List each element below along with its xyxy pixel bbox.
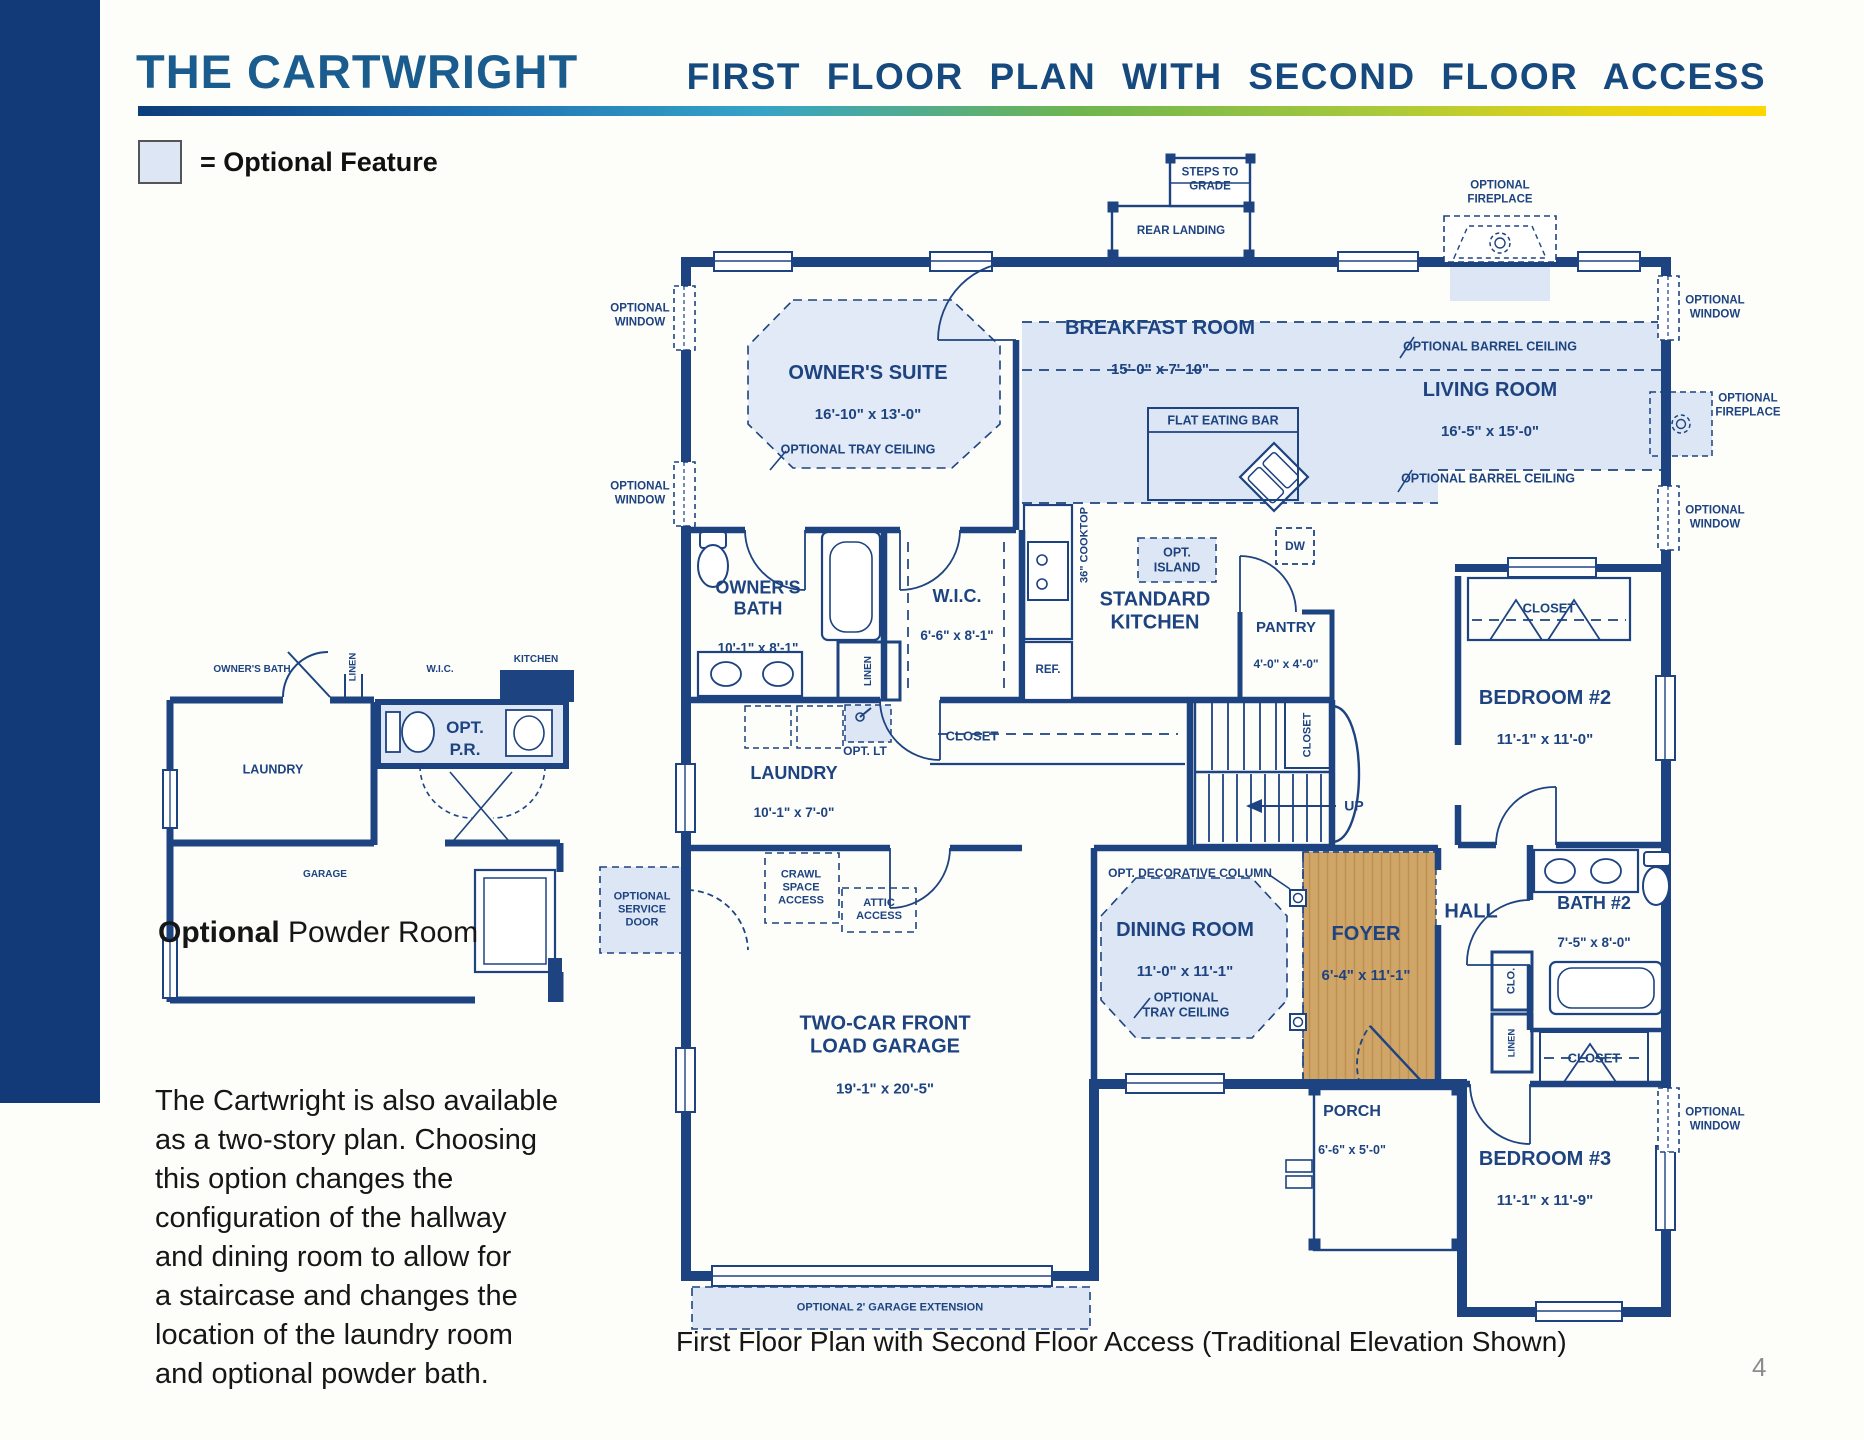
annotation-dw: DW <box>1285 539 1305 553</box>
annotation-optional-window-right-2: OPTIONAL WINDOW <box>1685 504 1744 531</box>
annotation-tray-ceiling-suite: OPTIONAL TRAY CEILING <box>781 443 936 458</box>
annotation-up: UP <box>1344 798 1363 815</box>
annotation-cooktop: 36" COOKTOP <box>1079 507 1092 583</box>
annotation-closet-bedroom3: CLOSET <box>1568 1050 1621 1065</box>
brochure-page: THE CARTWRIGHT FIRST FLOOR PLAN WITH SEC… <box>0 0 1864 1440</box>
inset-caption-bold: Optional <box>158 916 280 949</box>
room-label-pantry: PANTRY 4'-0" x 4'-0" <box>1253 600 1318 690</box>
inset-label-kitchen: KITCHEN <box>514 654 558 666</box>
annotation-service-door: OPTIONAL SERVICE DOOR <box>614 891 671 930</box>
annotation-garage-extension: OPTIONAL 2' GARAGE EXTENSION <box>797 1302 983 1315</box>
room-label-bedroom3: BEDROOM #3 11'-1" x 11'-9" <box>1479 1129 1611 1229</box>
room-label-living: LIVING ROOM 16'-5" x 15'-0" <box>1423 360 1557 460</box>
annotation-decorative-column: OPT. DECORATIVE COLUMN <box>1108 866 1272 880</box>
annotation-linen-suite: LINEN <box>863 656 875 686</box>
room-label-bath2: BATH #2 7'-5" x 8'-0" <box>1557 874 1631 970</box>
annotation-linen-bath2: LINEN <box>1506 1029 1517 1058</box>
room-label-laundry: LAUNDRY 10'-1" x 7'-0" <box>750 744 837 840</box>
annotation-optional-window-right-1: OPTIONAL WINDOW <box>1685 294 1744 321</box>
room-label-owners-suite: OWNER'S SUITE 16'-10" x 13'-0" <box>788 343 947 443</box>
annotation-closet-stairs: CLOSET <box>1302 713 1315 758</box>
annotation-opt-island: OPT. ISLAND <box>1154 545 1201 575</box>
room-label-garage: TWO-CAR FRONT LOAD GARAGE 19'-1" x 20'-5… <box>799 993 970 1117</box>
annotation-optional-window-left-1: OPTIONAL WINDOW <box>610 302 669 329</box>
annotation-rear-landing: REAR LANDING <box>1137 225 1225 239</box>
room-label-porch: PORCH 6'-6" x 5'-0" <box>1318 1084 1386 1176</box>
room-label-hall: HALL <box>1444 881 1497 942</box>
annotation-closet-laundry: CLOSET <box>946 728 999 743</box>
annotation-barrel-ceiling-2: OPTIONAL BARREL CEILING <box>1401 472 1575 487</box>
annotation-optional-window-left-2: OPTIONAL WINDOW <box>610 480 669 507</box>
room-label-bedroom2: BEDROOM #2 11'-1" x 11'-0" <box>1479 668 1611 768</box>
room-label-dining: DINING ROOM 11'-0" x 11'-1" <box>1116 900 1254 1000</box>
annotation-optional-fireplace-top: OPTIONAL FIREPLACE <box>1467 179 1532 206</box>
annotation-flat-eating-bar: FLAT EATING BAR <box>1167 414 1278 429</box>
annotation-closet-bedroom2: CLOSET <box>1523 600 1576 615</box>
inset-label-pr: P.R. <box>450 740 481 760</box>
room-label-breakfast: BREAKFAST ROOM 15'-0" x 7'-10" <box>1065 298 1255 398</box>
annotation-optional-fireplace-right: OPTIONAL FIREPLACE <box>1715 392 1780 419</box>
room-label-foyer: FOYER 6'-4" x 11'-1" <box>1322 904 1411 1004</box>
inset-caption: Optional Powder Room <box>158 916 478 950</box>
inset-label-opt: OPT. <box>446 718 484 738</box>
annotation-tray-ceiling-dining: OPTIONAL TRAY CEILING <box>1143 990 1230 1020</box>
annotation-optional-window-right-3: OPTIONAL WINDOW <box>1685 1106 1744 1133</box>
room-label-kitchen: STANDARD KITCHEN <box>1100 570 1211 655</box>
inset-label-owners-bath: OWNER'S BATH <box>213 664 290 676</box>
room-label-owners-bath: OWNER'S BATH 10'-1" x 8'-1" <box>715 558 800 675</box>
annotation-steps-to-grade: STEPS TO GRADE <box>1182 166 1239 193</box>
annotation-opt-lt: OPT. LT <box>843 744 887 758</box>
annotation-barrel-ceiling-1: OPTIONAL BARREL CEILING <box>1403 340 1577 355</box>
annotation-clo: CLO. <box>1506 968 1519 994</box>
inset-label-wic: W.I.C. <box>426 664 453 676</box>
annotation-crawl-space: CRAWL SPACE ACCESS <box>778 869 824 908</box>
inset-label-garage: GARAGE <box>303 869 347 881</box>
room-label-wic: W.I.C. 6'-6" x 8'-1" <box>920 567 993 663</box>
inset-label-linen: LINEN <box>347 653 358 682</box>
annotation-ref: REF. <box>1036 664 1061 678</box>
inset-label-laundry: LAUNDRY <box>243 763 304 778</box>
availability-note: The Cartwright is also available as a tw… <box>155 1082 615 1394</box>
plan-caption: First Floor Plan with Second Floor Acces… <box>676 1326 1567 1358</box>
page-number: 4 <box>1752 1352 1766 1383</box>
annotation-attic-access: ATTIC ACCESS <box>856 897 902 923</box>
inset-caption-rest: Powder Room <box>280 916 478 949</box>
